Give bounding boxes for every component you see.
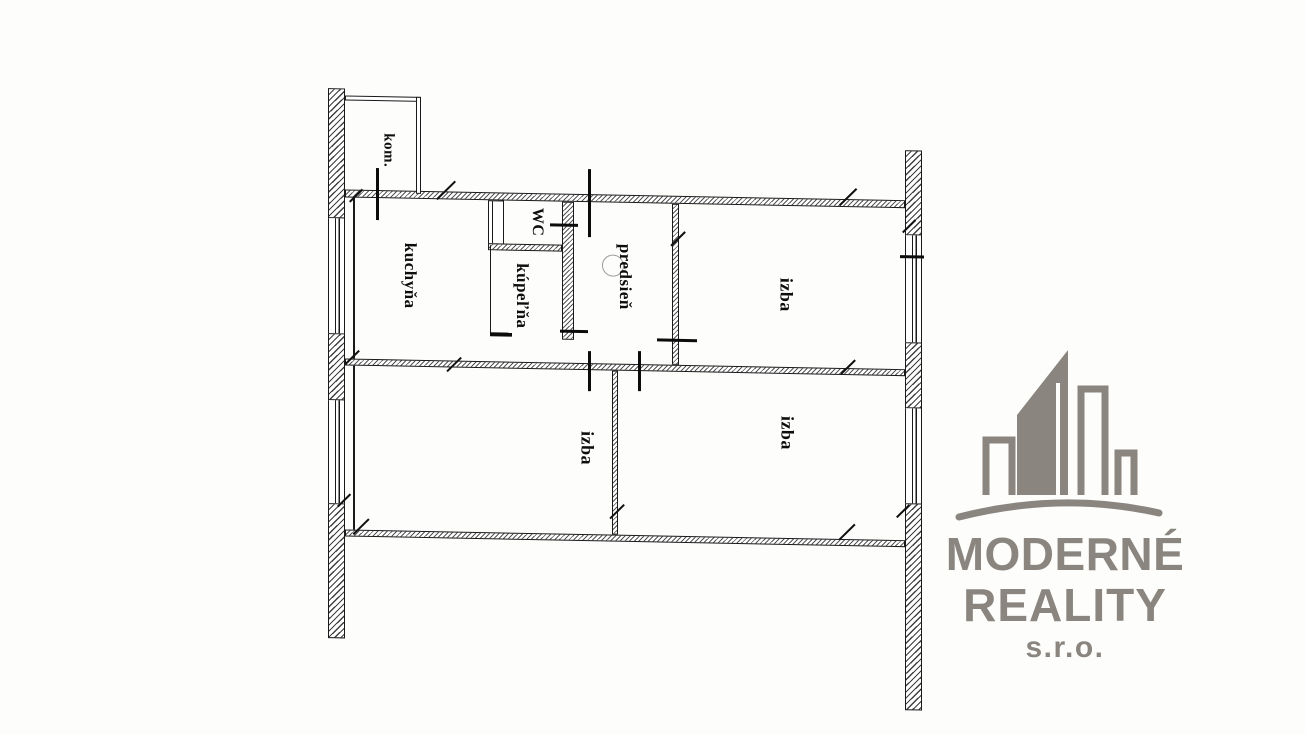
- wall-kom-right: [416, 97, 421, 194]
- exterior-wall-left: [322, 82, 926, 94]
- wall-pier: [328, 333, 345, 400]
- wall-pier: [905, 503, 922, 710]
- wall-kupelna-right: [562, 202, 574, 340]
- exterior-wall-right: [322, 82, 926, 94]
- opening-marks: [322, 82, 926, 94]
- watermark-text-reality: REALITY: [925, 578, 1205, 632]
- room-label-izba-bottom-right: izba: [777, 416, 798, 450]
- window: [905, 408, 922, 503]
- room-izba-bottom-right: [618, 371, 905, 541]
- wall-pier: [328, 88, 345, 218]
- window: [905, 235, 922, 342]
- watermark-text-sro: s.r.o.: [925, 631, 1205, 665]
- door-swing-marks: [322, 82, 926, 94]
- window: [328, 400, 345, 503]
- buildings-skyline-icon: [955, 343, 1175, 525]
- room-label-izba-bottom-left: izba: [577, 431, 598, 465]
- floor-plan: kom. kuchyňa WC kúpeľňa predsieň izba iz…: [322, 82, 926, 730]
- window: [328, 218, 345, 333]
- room-kuchyna: [355, 198, 488, 362]
- duct-shaft: [488, 200, 504, 245]
- room-label-kom: kom.: [380, 133, 397, 167]
- watermark-text-moderne: MODERNÉ: [925, 527, 1205, 581]
- wall-pier: [905, 342, 922, 408]
- room-label-kupelna: kúpeľňa: [512, 263, 532, 329]
- wall-pier: [328, 503, 345, 638]
- duct-shaft-inner-line: [492, 201, 493, 243]
- room-izba-bottom-left: [355, 366, 612, 535]
- room-label-kuchyna: kuchyňa: [400, 243, 420, 309]
- room-label-wc: WC: [528, 208, 546, 237]
- room-label-predsien: predsieň: [615, 244, 635, 310]
- room-label-izba-top-right: izba: [776, 278, 797, 312]
